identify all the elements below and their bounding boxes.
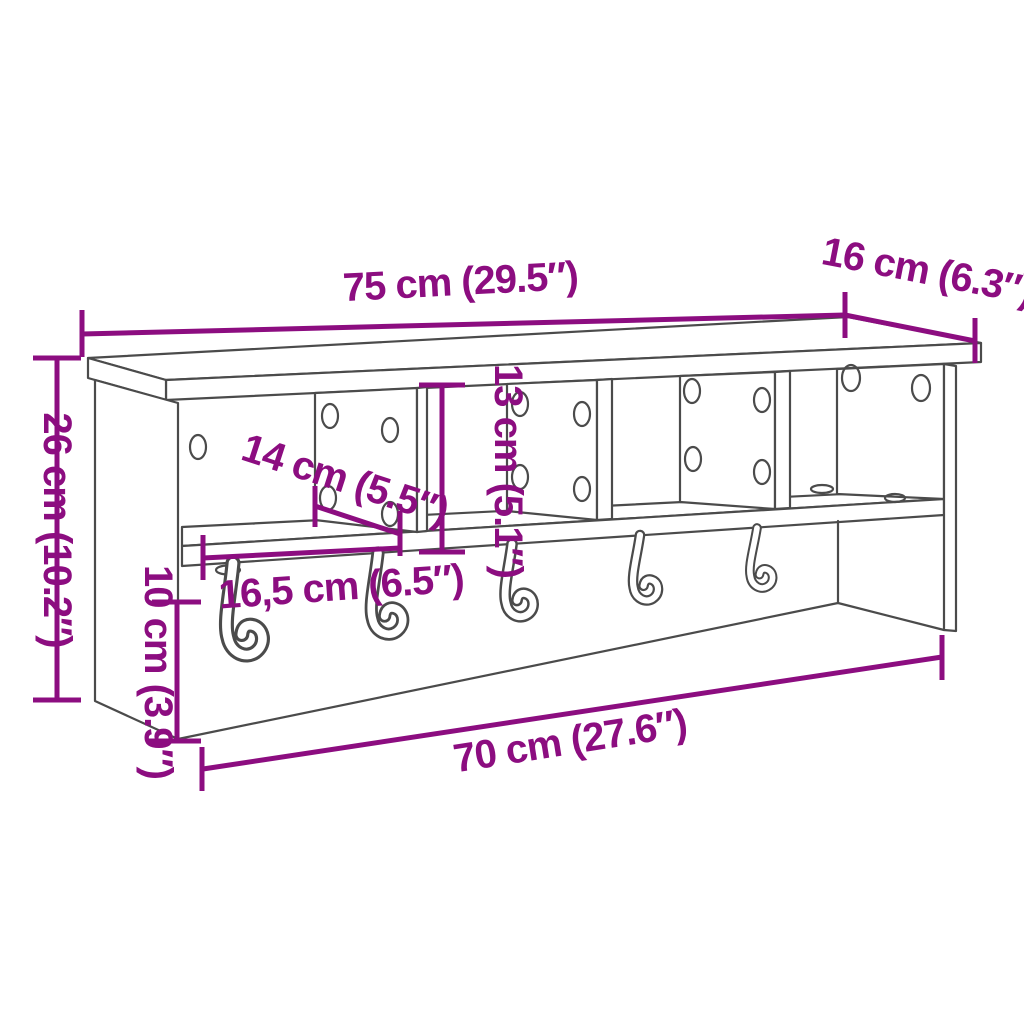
- label-rail-height: 10 cm (3.9″): [136, 565, 180, 779]
- right-side-panel: [944, 364, 956, 631]
- coat-hook-5: [747, 528, 780, 590]
- divider-panel-4: [837, 364, 944, 499]
- label-compartment-height: 13 cm (5.1″): [486, 364, 530, 578]
- divider-panel-3: [680, 371, 790, 509]
- coat-hook-4: [630, 535, 665, 602]
- label-total-width: 75 cm (29.5″): [342, 254, 579, 310]
- diagram-canvas: 75 cm (29.5″) 16 cm (6.3″) 26 cm (10.2″)…: [0, 0, 1024, 1024]
- furniture-dimension-diagram: 75 cm (29.5″) 16 cm (6.3″) 26 cm (10.2″)…: [0, 0, 1024, 1024]
- coat-rack-drawing: [88, 317, 981, 739]
- label-depth: 16 cm (6.3″): [818, 229, 1024, 313]
- label-compartment-width: 16,5 cm (6.5″): [217, 557, 465, 618]
- label-total-height: 26 cm (10.2″): [35, 412, 79, 647]
